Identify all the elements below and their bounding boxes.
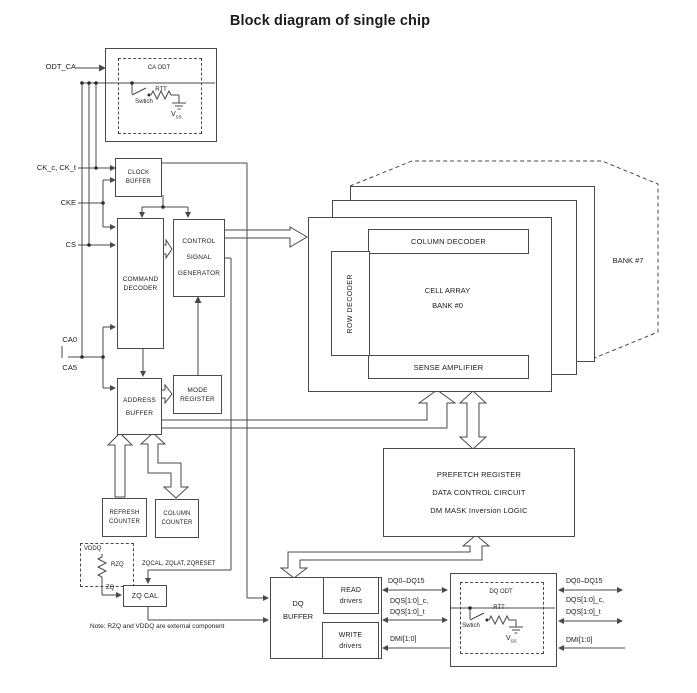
command-decoder-block: COMMANDDECODER [117, 218, 164, 349]
external-note: Note: RZQ and VDDQ are external componen… [90, 622, 224, 632]
bank7-label: BANK #7 [594, 256, 662, 266]
csg-to-bank-bus-arrow [223, 227, 307, 247]
mode-register-block: MODEREGISTER [173, 375, 222, 414]
address-buffer-block: ADDRESSBUFFER [117, 378, 162, 435]
block-diagram: Block diagram of single chip ODT_CA CK_c… [0, 0, 697, 693]
sense-amplifier-block: SENSE AMPLIFIER [368, 355, 529, 379]
dq-odt-label: DQ ODT [460, 587, 542, 597]
zq-cal-block: ZQ CAL [123, 585, 167, 607]
ca-odt-vss-label: VSS [171, 110, 182, 122]
refresh-counter-block: REFRESHCOUNTER [102, 498, 147, 537]
dq-buffer-label: DQ BUFFER [272, 597, 324, 623]
pin-cke: CKE [46, 198, 76, 208]
dq-odt-switch-label: Swtich [454, 621, 488, 631]
dqs-t-label-left: DQS[1:0]_t [390, 608, 425, 618]
dq-odt-vss-label: VSS [506, 634, 517, 646]
dmi-label-left: DMI[1:0] [390, 635, 416, 645]
pin-ck: CK_c, CK_t [18, 163, 76, 173]
vddq-label: VDDQ [84, 544, 101, 554]
refresh-to-addr-arrow [108, 433, 132, 497]
page-title: Block diagram of single chip [115, 16, 545, 26]
clock-buffer-block: CLOCKBUFFER [115, 158, 162, 197]
zq-signals-label: ZQCAL, ZQLAT, ZQRESET [142, 559, 215, 569]
ca-odt-label: CA ODT [118, 63, 200, 73]
cell-array-bank0-label: BANK #0 [368, 301, 527, 311]
rzq-label: RZQ [111, 560, 124, 570]
prefetch-block: PREFETCH REGISTER DATA CONTROL CIRCUIT D… [383, 448, 575, 537]
addr-column-counter-arrow [141, 433, 188, 498]
dqs-t-label-right: DQS[1:0]_t [566, 608, 601, 618]
control-signal-generator-block: CONTROLSIGNALGENERATOR [173, 219, 225, 297]
ca-odt-switch-label: Swtich [127, 97, 161, 107]
dq-label-right: DQ0–DQ15 [566, 577, 603, 587]
row-decoder-block: ROW DECODER [331, 251, 370, 356]
dq-label-left: DQ0–DQ15 [388, 577, 425, 587]
pin-ca0: CA0 [46, 335, 77, 345]
pin-odt-ca: ODT_CA [28, 62, 76, 72]
pin-ca5: CA5 [46, 363, 77, 373]
bank-prefetch-bus-arrow [460, 391, 486, 449]
dqs-c-label-right: DQS[1:0]_c, [566, 596, 604, 606]
zq-label: ZQ [106, 583, 114, 593]
column-decoder-block: COLUMN DECODER [368, 229, 529, 254]
dqs-c-label-left: DQS[1:0]_c, [390, 597, 428, 607]
prefetch-dqbuffer-bus-arrow [281, 535, 489, 578]
cell-array-label: CELL ARRAY [368, 286, 527, 296]
dmi-label-right: DMI[1:0] [566, 636, 592, 646]
write-drivers-block: WRITEdrivers [322, 622, 379, 659]
read-drivers-block: READdrivers [323, 577, 379, 614]
ca-odt-rtt-label: RTT [148, 85, 174, 95]
dq-odt-rtt-label: RTT [486, 603, 512, 613]
pin-cs: CS [50, 240, 76, 250]
column-counter-block: COLUMNCOUNTER [155, 499, 199, 538]
